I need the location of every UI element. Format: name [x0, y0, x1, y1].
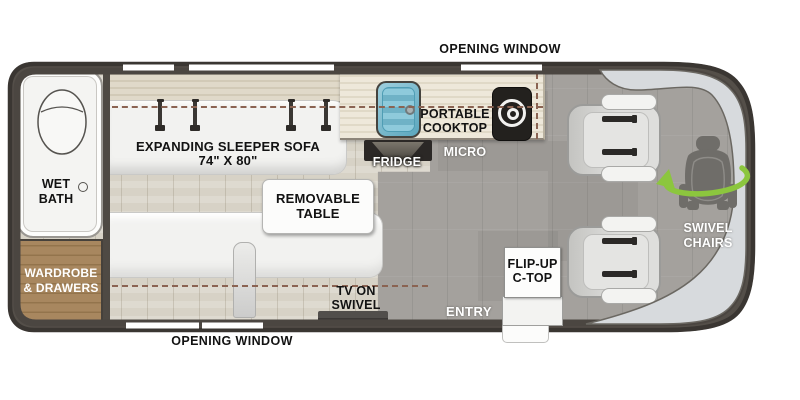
swivel-chair-1: [565, 94, 663, 182]
removable-table: REMOVABLE TABLE: [262, 179, 374, 234]
window-strip: [461, 65, 542, 71]
entry-label: ENTRY: [442, 305, 496, 319]
seatbelt-icon: [324, 101, 328, 127]
seatbelt-icon: [158, 101, 162, 127]
burner-inner-ring: [507, 108, 519, 120]
seatbelt-icon: [602, 149, 635, 155]
sofa-back-shelf: [110, 71, 345, 103]
wet-bath-label: WET BATH: [26, 177, 86, 207]
chair-armrest: [601, 166, 657, 182]
chair-armrest: [601, 94, 657, 110]
sink: [376, 81, 421, 138]
toilet-icon: [19, 72, 101, 236]
seatbelt-icon: [602, 116, 635, 122]
flip-up-counter-label: FLIP-UP C-TOP: [505, 257, 560, 285]
flip-up-counter-leaf: [502, 296, 563, 326]
seatbelt-icon: [193, 101, 197, 127]
portable-cooktop: [492, 87, 532, 141]
tv-label: TV ON SWIVEL: [324, 284, 388, 312]
rv-floorplan-canvas: REMOVABLE TABLE: [0, 0, 800, 400]
swivel-chair-2: [565, 216, 663, 304]
seatbelt-icon: [602, 271, 635, 277]
counter-edge-dashed-line: [536, 73, 538, 139]
micro-label: MICRO: [438, 145, 492, 159]
swivel-chairs-label: SWIVEL CHAIRS: [674, 221, 742, 251]
opening-window-bottom-label: OPENING WINDOW: [162, 334, 302, 348]
flip-up-counter: FLIP-UP C-TOP: [504, 247, 561, 298]
portable-cooktop-label: PORTABLE COOKTOP: [416, 107, 494, 135]
wet-bath-room: [17, 70, 103, 238]
window-strip: [126, 323, 199, 329]
wardrobe-label: WARDROBE & DRAWERS: [20, 266, 102, 296]
seatbelt-icon: [602, 238, 635, 244]
opening-window-top-label: OPENING WINDOW: [430, 42, 570, 56]
sleeper-sofa-label: EXPANDING SLEEPER SOFA 74" X 80": [128, 140, 328, 168]
window-strip: [202, 323, 263, 329]
burner-icon: [498, 99, 526, 127]
removable-table-label: REMOVABLE TABLE: [263, 191, 373, 221]
chair-armrest: [601, 288, 657, 304]
fridge-label: FRIDGE: [366, 155, 428, 169]
table-pedestal: [233, 242, 256, 318]
window-strip: [189, 65, 334, 71]
tv-on-swivel: [318, 311, 388, 321]
seatbelt-icon: [289, 101, 293, 127]
bath-divider-wall: [103, 71, 110, 323]
window-strip: [123, 65, 174, 71]
chair-armrest: [601, 216, 657, 232]
